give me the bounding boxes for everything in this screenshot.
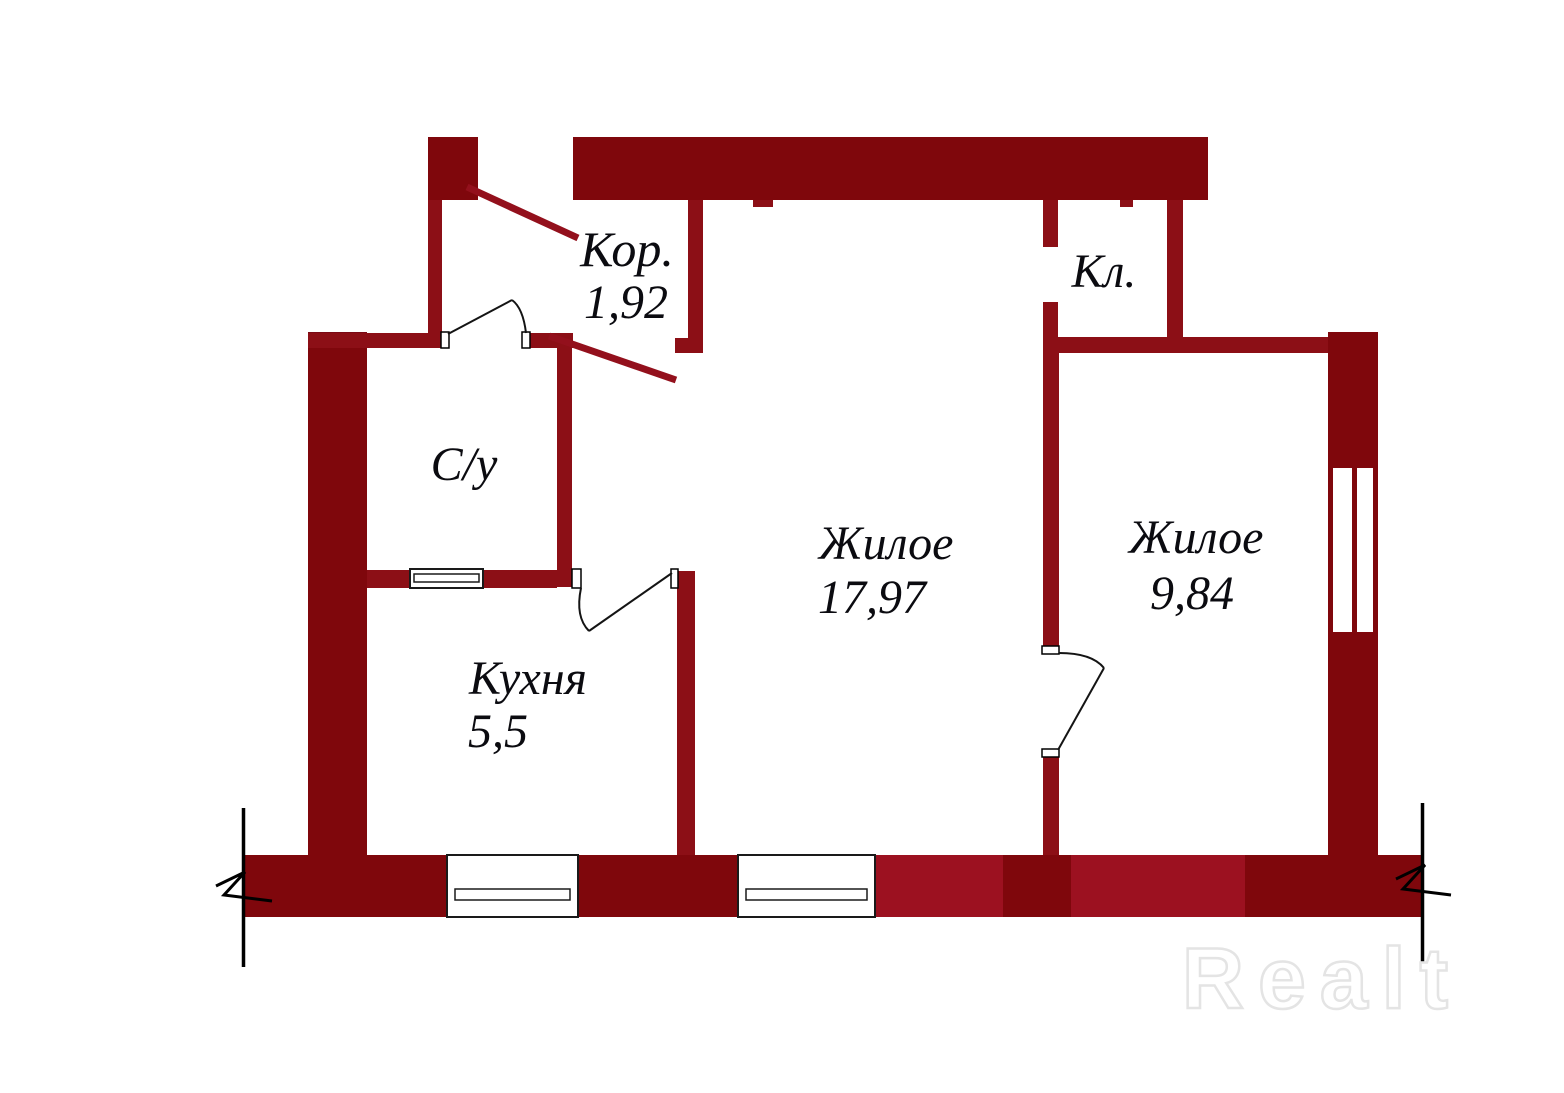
wall-kitchen-right [677,571,695,857]
room-living-large: Жилое 17,97 [817,517,954,624]
wall-tick-a [753,200,773,207]
wall-bottom-seg5 [1071,855,1245,917]
room-label-bathroom: С/у [431,438,498,491]
wall-right-exterior-upper [1328,332,1378,462]
kitchen-door-arc [579,588,589,631]
living-door-jamb-top [1042,646,1059,654]
room-area-corridor: 1,92 [584,276,668,329]
wall-left-exterior [308,332,367,857]
window-living-large [738,855,875,917]
wall-bathroom-bottom-right [482,570,557,588]
window-kitchen-sash [455,889,570,900]
wall-bottom-seg4 [1003,855,1071,917]
kitchen-door-leaf [589,573,672,631]
entry-door-arc [512,300,526,333]
wall-between-livings-upper [1043,353,1059,647]
wall-bathroom-top-left [308,333,442,348]
pointer-line-upper [467,187,578,238]
wall-between-livings-lower [1043,757,1059,857]
living-door-jamb-bottom [1042,749,1059,757]
room-closet: Кл. [1071,245,1137,298]
wall-bottom-seg1 [243,855,447,917]
window-kitchen [447,855,578,917]
wall-corridor-right-foot [675,338,703,353]
room-label-kitchen: Кухня [468,652,587,705]
room-living-small: Жилое 9,84 [1127,511,1264,620]
wall-bottom-seg2 [578,855,738,917]
wall-bottom-seg6 [1245,855,1422,917]
living-door-arc [1059,653,1104,668]
wall-closet-left-upper [1043,200,1058,247]
window-living-large-sash [746,889,867,900]
room-kitchen: Кухня 5,5 [468,652,587,758]
living-door-leaf [1058,668,1104,750]
floor-plan-drawing: Кор. 1,92 Кл. С/у Кухня 5,5 Жилое 17,97 … [0,0,1564,1093]
room-area-living-small: 9,84 [1150,567,1234,620]
wall-bottom-seg3 [875,855,1003,917]
wall-closet-right [1167,200,1183,353]
room-label-closet: Кл. [1071,245,1137,298]
wall-top-main [573,137,1208,200]
wall-tick-b [1120,200,1133,207]
entry-door-leaf [448,300,512,334]
window-living-small-pane2 [1357,468,1373,632]
room-corridor: Кор. 1,92 [579,221,674,329]
window-living-small-pane1 [1333,468,1352,632]
room-label-corridor: Кор. [579,221,674,277]
floor-plan-canvas: Кор. 1,92 Кл. С/у Кухня 5,5 Жилое 17,97 … [0,0,1564,1093]
wall-living-small-top [1043,337,1328,353]
realt-watermark: Realt [1182,931,1462,1027]
room-labels: Кор. 1,92 Кл. С/у Кухня 5,5 Жилое 17,97 … [431,221,1264,758]
entry-door-jamb-right [522,332,530,348]
wall-right-exterior-lower [1328,638,1378,857]
wall-bathroom-right [557,333,572,587]
wall-corridor-right [688,200,703,338]
room-label-living-large: Жилое [817,517,954,570]
window-bathroom-sash [414,574,479,582]
wall-bathroom-bottom-left [367,570,411,588]
room-area-living-large: 17,97 [818,571,928,624]
kitchen-door-jamb-left [572,569,581,588]
wall-corridor-left [428,200,442,333]
kitchen-door-jamb-right [671,569,678,588]
room-label-living-small: Жилое [1127,511,1264,564]
room-bathroom: С/у [431,438,498,491]
entry-door-jamb-left [441,332,449,348]
room-area-kitchen: 5,5 [468,705,528,758]
